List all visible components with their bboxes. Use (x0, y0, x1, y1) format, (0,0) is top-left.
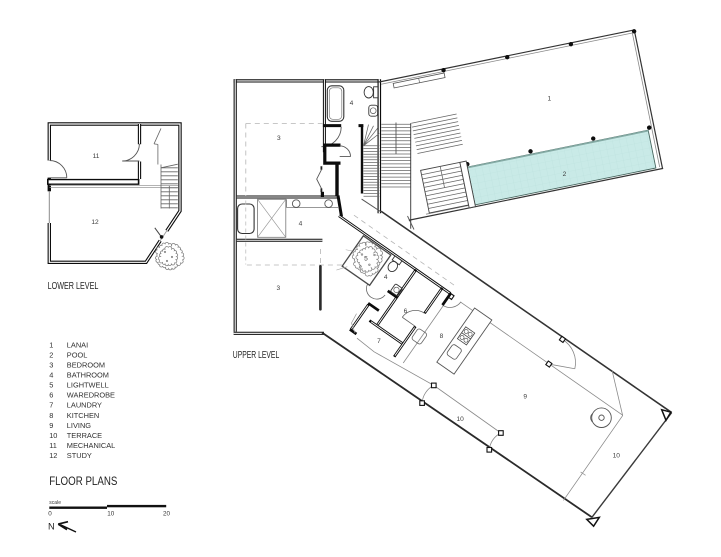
svg-text:6: 6 (49, 391, 53, 400)
svg-text:10: 10 (613, 453, 621, 460)
svg-text:4: 4 (350, 100, 354, 107)
svg-text:2: 2 (49, 350, 53, 359)
svg-text:4: 4 (299, 220, 303, 227)
svg-text:BEDROOM: BEDROOM (67, 361, 105, 370)
svg-text:UPPER LEVEL: UPPER LEVEL (233, 349, 280, 361)
svg-text:5: 5 (364, 256, 368, 263)
svg-text:LANAI: LANAI (67, 340, 88, 349)
svg-text:12: 12 (91, 219, 99, 226)
svg-text:10: 10 (457, 416, 465, 423)
svg-text:MECHANICAL: MECHANICAL (67, 441, 115, 450)
svg-text:1: 1 (547, 96, 551, 103)
svg-text:KITCHEN: KITCHEN (67, 411, 99, 420)
svg-text:7: 7 (49, 401, 53, 410)
svg-text:11: 11 (93, 153, 100, 160)
svg-text:scale: scale (49, 500, 61, 506)
svg-text:9: 9 (523, 393, 527, 400)
svg-text:10: 10 (49, 431, 57, 440)
svg-text:5: 5 (49, 381, 53, 390)
svg-text:9: 9 (49, 421, 53, 430)
svg-text:12: 12 (49, 451, 57, 460)
svg-text:WAREDROBE: WAREDROBE (67, 391, 115, 400)
svg-text:LIVING: LIVING (67, 421, 91, 430)
svg-text:TERRACE: TERRACE (67, 431, 102, 440)
svg-text:3: 3 (277, 135, 281, 142)
svg-text:4: 4 (49, 371, 53, 380)
svg-text:0: 0 (48, 510, 52, 517)
svg-text:LIGHTWELL: LIGHTWELL (67, 381, 109, 390)
svg-text:LOWER LEVEL: LOWER LEVEL (48, 280, 99, 292)
svg-text:6: 6 (404, 308, 408, 315)
svg-text:LAUNDRY: LAUNDRY (67, 401, 102, 410)
svg-text:10: 10 (107, 510, 115, 517)
svg-text:2: 2 (563, 171, 567, 178)
svg-text:4: 4 (384, 274, 388, 281)
svg-text:11: 11 (49, 441, 57, 450)
svg-text:3: 3 (49, 361, 53, 370)
svg-text:POOL: POOL (67, 350, 88, 359)
svg-text:8: 8 (440, 333, 444, 340)
svg-text:FLOOR PLANS: FLOOR PLANS (49, 475, 117, 488)
svg-text:20: 20 (163, 510, 171, 517)
svg-text:3: 3 (276, 285, 280, 292)
svg-text:7: 7 (377, 338, 381, 345)
svg-text:8: 8 (49, 411, 53, 420)
svg-text:STUDY: STUDY (67, 451, 92, 460)
svg-text:1: 1 (49, 340, 53, 349)
svg-text:N: N (48, 521, 55, 531)
svg-text:BATHROOM: BATHROOM (67, 371, 109, 380)
